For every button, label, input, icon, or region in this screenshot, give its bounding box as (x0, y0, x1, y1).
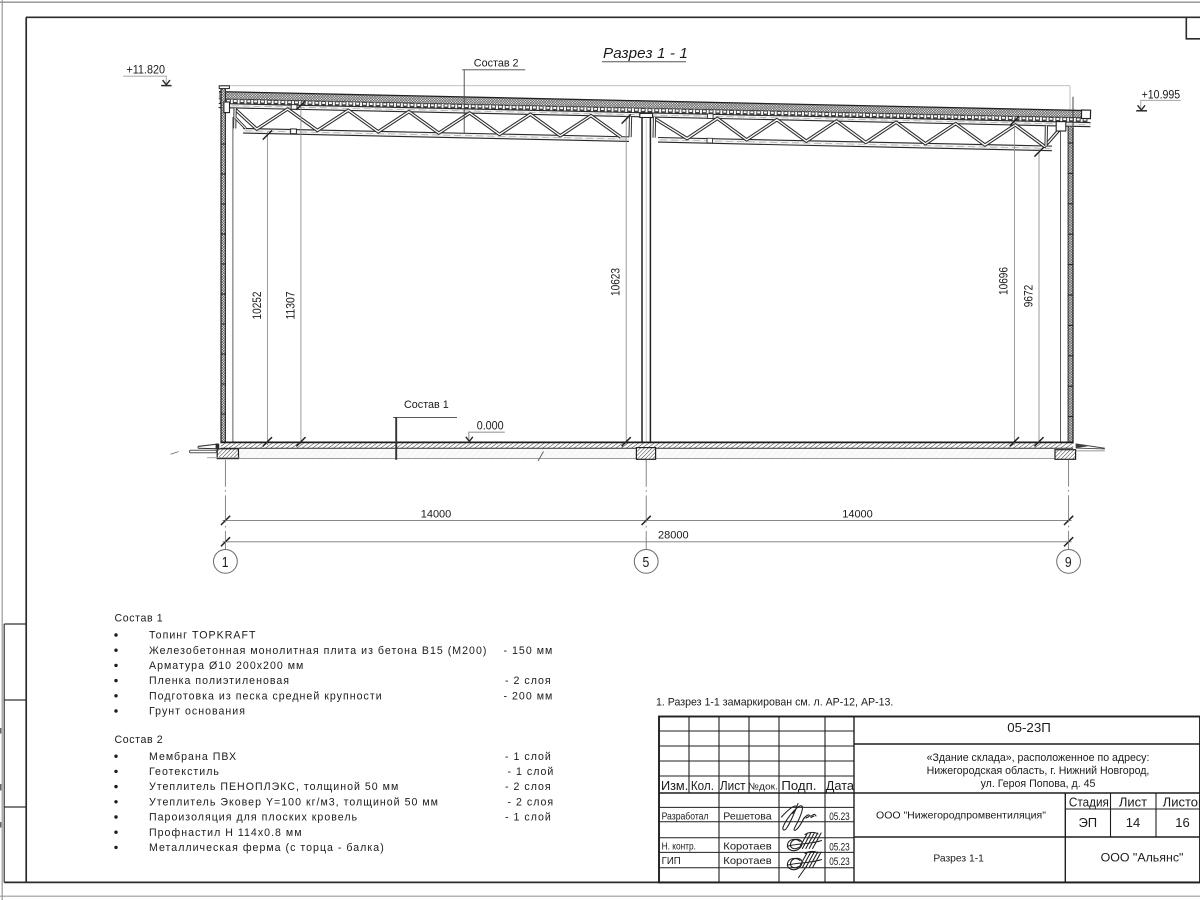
svg-text:16: 16 (1175, 815, 1189, 830)
svg-text:10623: 10623 (609, 268, 623, 296)
svg-text:Состав 1: Состав 1 (115, 613, 164, 625)
svg-text:Лист: Лист (1119, 794, 1147, 809)
svg-text:Состав 1: Состав 1 (404, 399, 449, 411)
svg-text:14000: 14000 (842, 508, 873, 520)
svg-text:0.000: 0.000 (477, 421, 504, 433)
svg-text:+10.995: +10.995 (1142, 87, 1181, 101)
svg-text:Нижегородская область, г. Нижн: Нижегородская область, г. Нижний Новгоро… (927, 765, 1150, 777)
svg-text:ЭП: ЭП (1078, 815, 1097, 830)
svg-text:10252: 10252 (250, 291, 264, 319)
svg-text:Утеплитель ПЕНОПЛЭКС, толщиной: Утеплитель ПЕНОПЛЭКС, толщиной 50 мм (149, 781, 399, 793)
svg-text:11307: 11307 (283, 291, 297, 319)
svg-text:Металлическая ферма (с торца -: Металлическая ферма (с торца - балка) (149, 842, 385, 854)
svg-text:- 2 слоя: - 2 слоя (508, 796, 555, 808)
svg-text:Состав 2: Состав 2 (474, 58, 519, 70)
svg-text:ООО "Нижегородпромвентиляция": ООО "Нижегородпромвентиляция" (876, 809, 1046, 821)
svg-text:ул. Героя Попова, д. 45: ул. Героя Попова, д. 45 (981, 778, 1096, 790)
svg-text:Коротаев: Коротаев (723, 842, 771, 853)
svg-text:Дата: Дата (826, 778, 855, 793)
svg-text:- 1 слой: - 1 слой (505, 812, 552, 824)
svg-text:Арматура Ø10 200х200 мм: Арматура Ø10 200х200 мм (149, 660, 304, 672)
svg-text:Железобетонная монолитная плит: Железобетонная монолитная плита из бетон… (149, 645, 487, 657)
svg-text:05.23: 05.23 (829, 811, 850, 823)
svg-text:- 200 мм: - 200 мм (504, 690, 554, 702)
svg-text:Коротаев: Коротаев (723, 856, 771, 867)
svg-text:ООО "Альянс": ООО "Альянс" (1101, 851, 1184, 865)
svg-text:- 1 слой: - 1 слой (508, 766, 555, 778)
svg-text:+11.820: +11.820 (126, 63, 165, 77)
svg-text:05.23: 05.23 (829, 856, 850, 868)
svg-text:10696: 10696 (996, 267, 1010, 295)
svg-text:Лист: Лист (720, 778, 746, 793)
svg-text:Пароизоляция для плоских крове: Пароизоляция для плоских кровель (149, 812, 358, 824)
svg-text:Мембрана ПВХ: Мембрана ПВХ (149, 751, 237, 763)
svg-text:9672: 9672 (1021, 284, 1035, 307)
svg-text:- 1 слой: - 1 слой (505, 751, 552, 763)
svg-text:Решетова: Решетова (723, 811, 772, 822)
svg-text:Топинг TOPKRAFT: Топинг TOPKRAFT (149, 630, 256, 642)
svg-text:05-23П: 05-23П (1007, 720, 1051, 735)
svg-text:05.23: 05.23 (829, 841, 850, 853)
svg-text:№док.: №док. (748, 781, 778, 792)
svg-text:«Здание склада», расположенное: «Здание склада», расположенное по адресу… (927, 752, 1150, 764)
svg-text:Разработал: Разработал (662, 810, 709, 822)
svg-text:- 2 слоя: - 2 слоя (505, 675, 552, 687)
svg-text:- 2 слоя: - 2 слоя (505, 781, 552, 793)
svg-text:Разрез 1-1: Разрез 1-1 (933, 854, 984, 865)
svg-text:Разрез 1 - 1: Разрез 1 - 1 (603, 45, 688, 62)
svg-text:Профнастил Н 114х0.8 мм: Профнастил Н 114х0.8 мм (149, 827, 303, 839)
svg-text:Листов: Листов (1163, 794, 1200, 809)
svg-text:Пленка полиэтиленовая: Пленка полиэтиленовая (149, 675, 290, 687)
svg-text:- 150 мм: - 150 мм (504, 645, 554, 657)
svg-text:Стадия: Стадия (1069, 794, 1109, 809)
svg-text:ГИП: ГИП (662, 856, 681, 867)
svg-text:14000: 14000 (421, 508, 452, 520)
svg-text:28000: 28000 (658, 530, 689, 542)
svg-text:9: 9 (1065, 555, 1072, 571)
svg-text:5: 5 (643, 555, 650, 571)
svg-text:Изм.: Изм. (661, 778, 688, 793)
svg-text:Подп.: Подп. (781, 778, 816, 793)
svg-text:1. Разрез 1-1 замаркирован см.: 1. Разрез 1-1 замаркирован см. л. АР-12,… (656, 697, 893, 709)
svg-text:Подготовка из песка средней кр: Подготовка из песка средней крупности (149, 690, 383, 702)
svg-text:Геотекстиль: Геотекстиль (149, 766, 220, 778)
svg-text:Н. контр.: Н. контр. (662, 842, 696, 853)
svg-text:Состав 2: Состав 2 (115, 734, 164, 746)
svg-text:14: 14 (1126, 815, 1140, 830)
svg-text:Утеплитель Эковер Y=100 кг/м3,: Утеплитель Эковер Y=100 кг/м3, толщиной … (149, 796, 439, 808)
svg-text:1: 1 (222, 555, 229, 571)
svg-text:Грунт основания: Грунт основания (149, 706, 246, 718)
svg-text:Кол.: Кол. (691, 778, 714, 793)
